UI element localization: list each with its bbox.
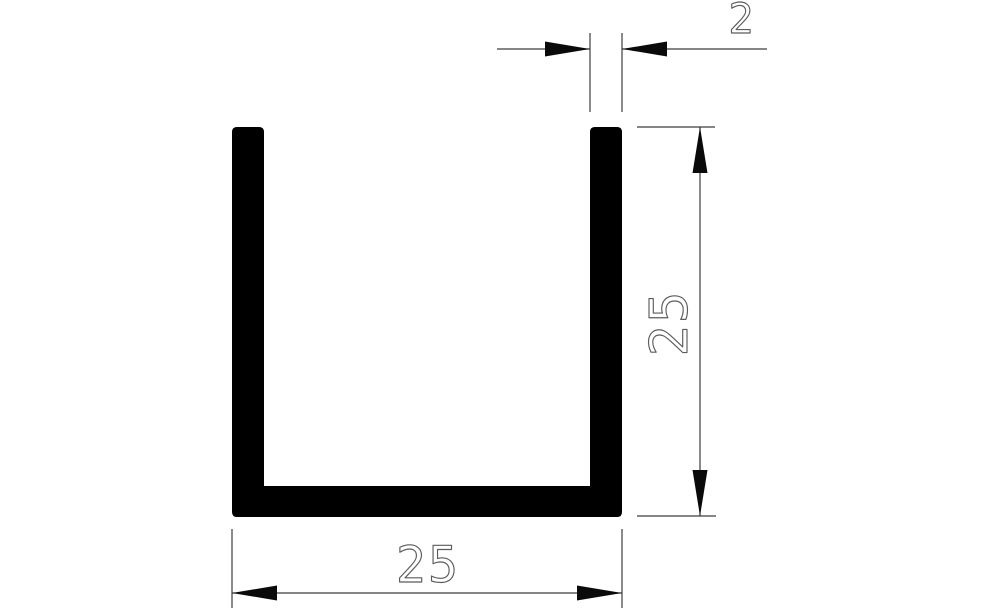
- arrowhead-left-icon: [622, 42, 667, 57]
- thickness-dimension: [497, 33, 767, 112]
- arrowhead-left-icon: [232, 586, 277, 601]
- technical-drawing: 2 25 25: [0, 0, 1000, 614]
- arrowhead-right-icon: [545, 42, 590, 57]
- thickness-arrowheads: [545, 42, 667, 57]
- width-dimension-label: 25: [396, 536, 460, 594]
- height-dimension-label: 25: [640, 290, 700, 357]
- u-channel-profile: [232, 127, 622, 517]
- arrowhead-up-icon: [693, 127, 708, 173]
- drawing-canvas: 2 25 25: [0, 0, 1000, 614]
- thickness-dimension-label: 2: [728, 0, 755, 43]
- arrowhead-right-icon: [577, 586, 622, 601]
- arrowhead-down-icon: [693, 470, 708, 516]
